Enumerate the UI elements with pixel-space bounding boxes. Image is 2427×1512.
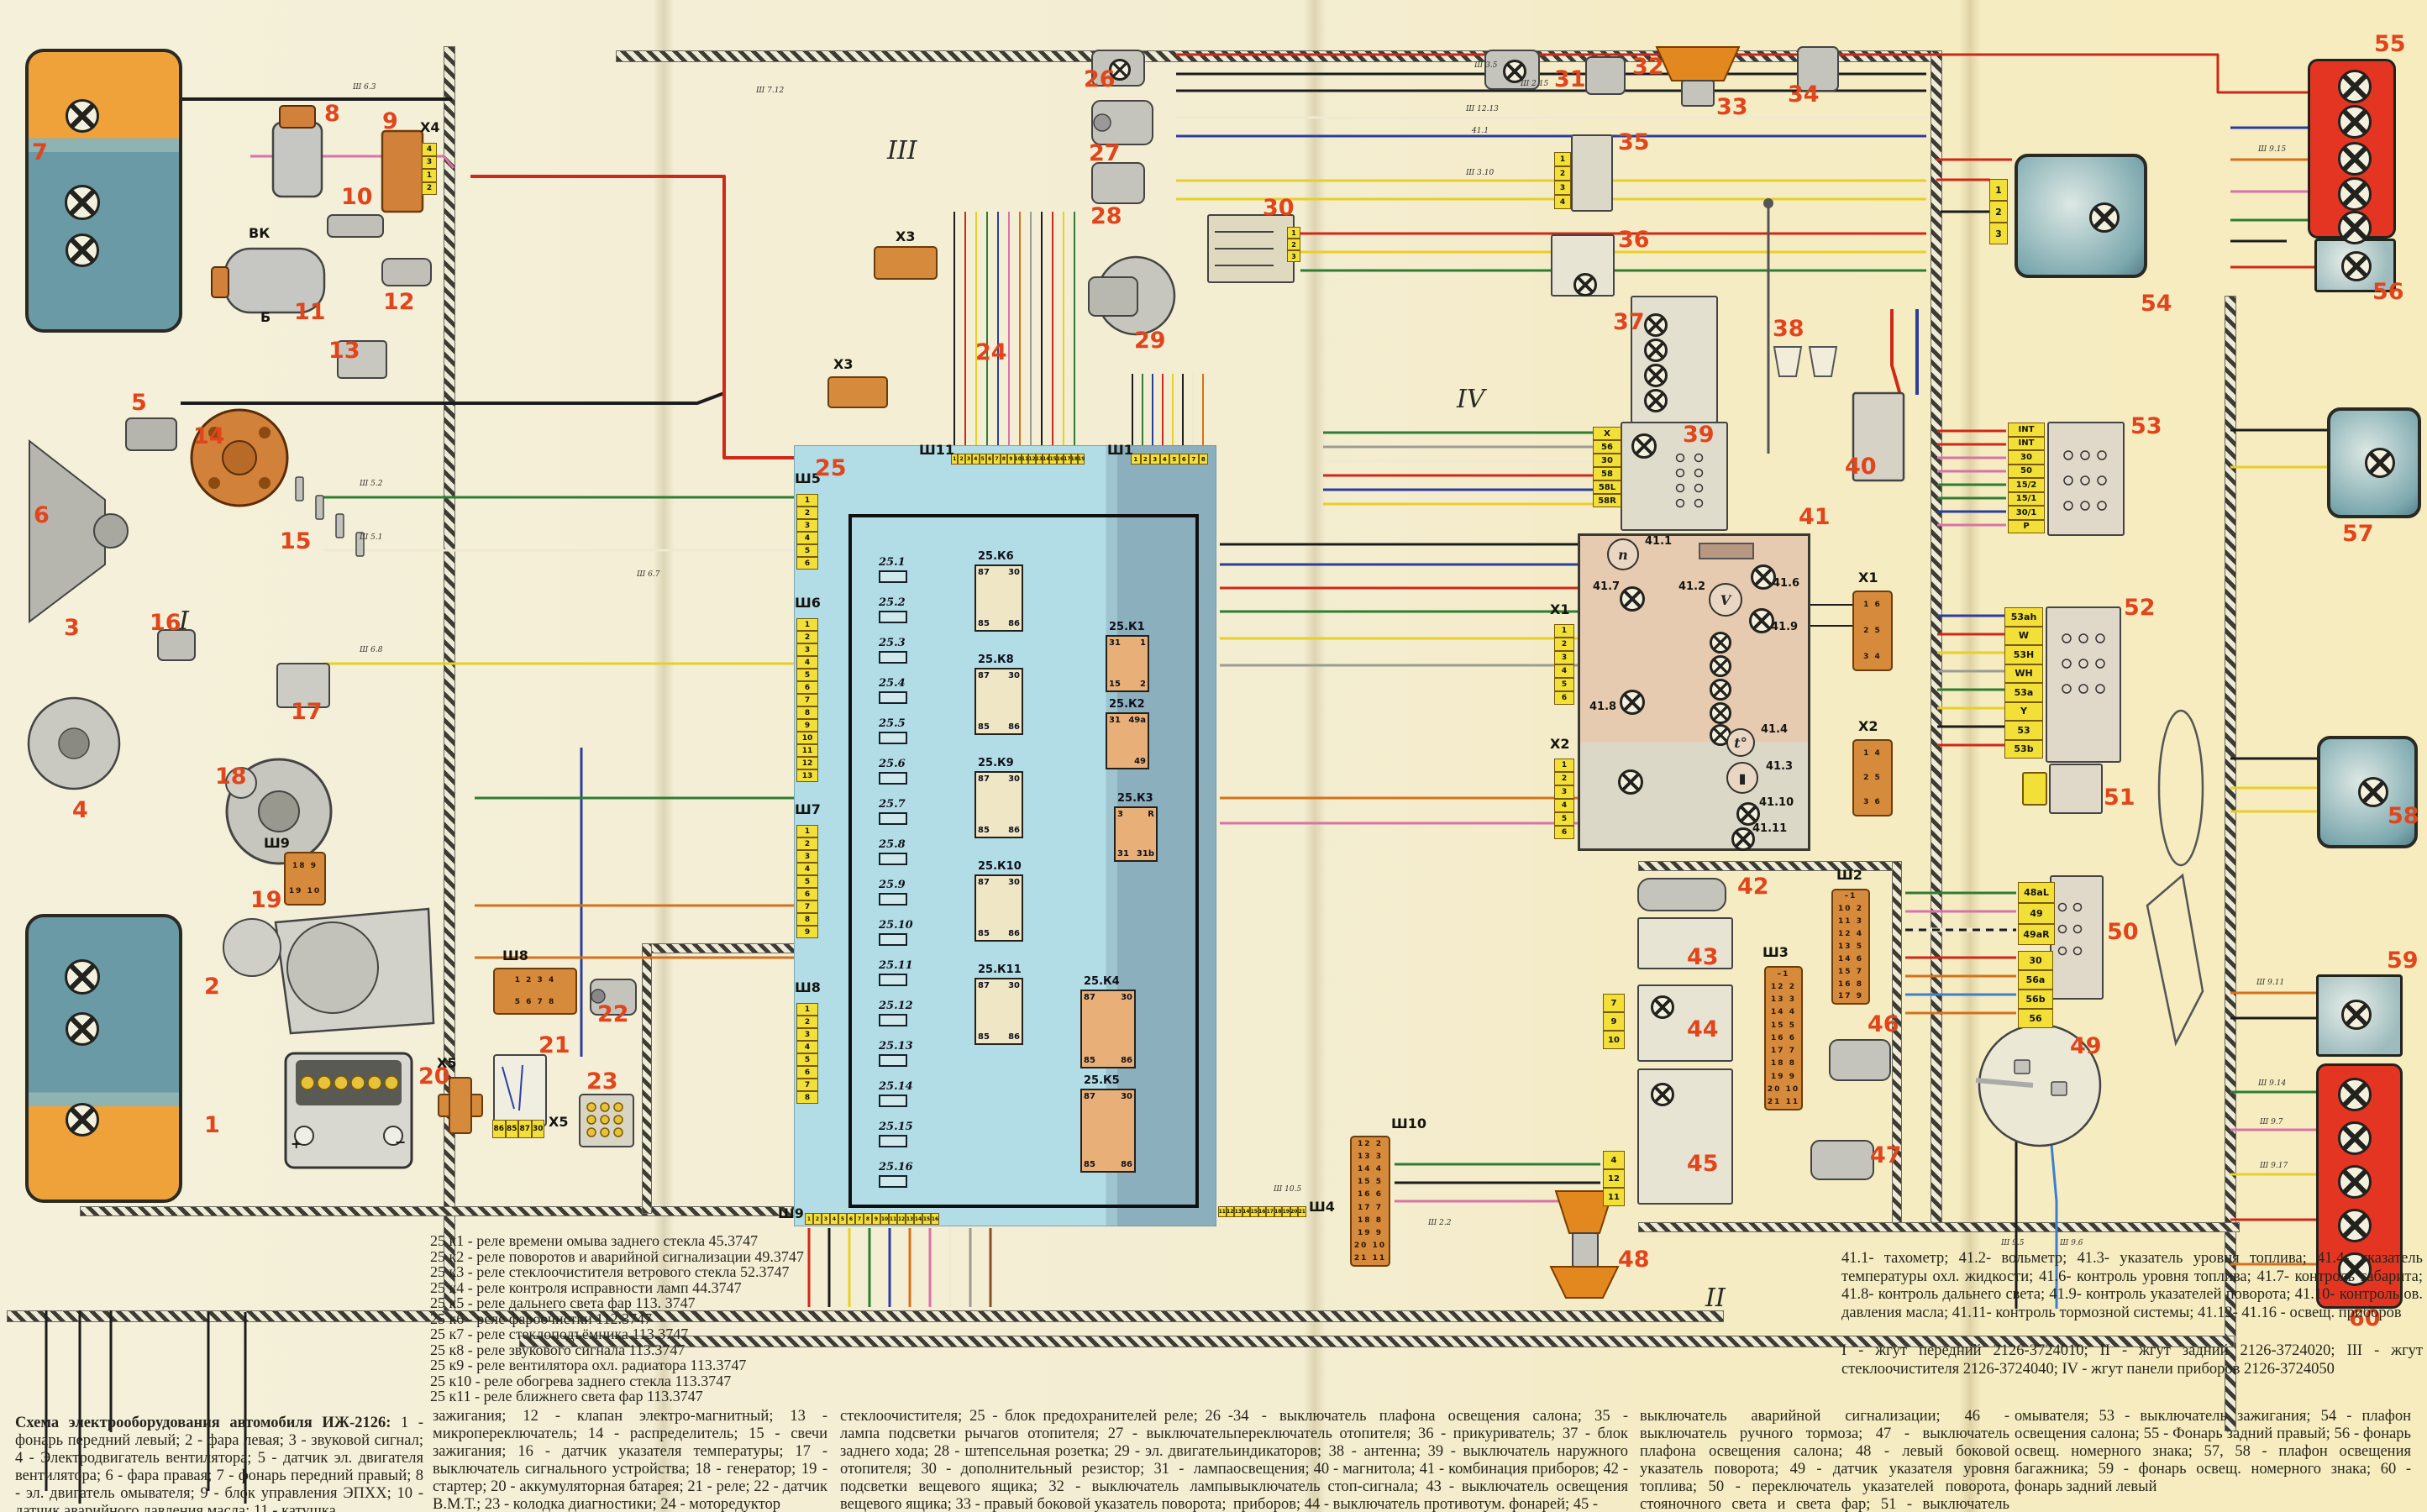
wire-label: Ш 2.15 <box>1521 80 1548 88</box>
relay-pin: 30 <box>1008 671 1020 680</box>
pin-53H: 53H <box>2004 645 2043 664</box>
pin-5: 5 <box>1554 678 1574 691</box>
component-number-29: 29 <box>1134 328 1166 354</box>
pin-12: 12 <box>1603 1169 1625 1188</box>
component-number-31: 31 <box>1554 66 1586 92</box>
pin-strip-unnamed: 41211 <box>1603 1151 1625 1206</box>
pin-4: 4 <box>1554 195 1571 209</box>
pin-14: 14 <box>1043 454 1049 465</box>
wiring-diagram-canvas: 25.125.225.325.425.525.625.725.825.925.1… <box>0 0 2427 1512</box>
connector-pin-row: 13 5 <box>1833 942 1868 951</box>
pin-56b: 56b <box>2018 990 2053 1009</box>
component-shape <box>1092 163 1144 203</box>
relay-legend-line: 25 к11 - реле ближнего света фар 113.374… <box>430 1389 804 1404</box>
pin-1: 1 <box>796 494 818 507</box>
component-shape <box>328 215 383 237</box>
pin-8: 8 <box>1199 454 1209 465</box>
pin-2: 2 <box>422 182 437 196</box>
relay-pin: R <box>1148 810 1154 819</box>
fuse-25.14 <box>879 1095 907 1107</box>
pin-58R: 58R <box>1593 494 1621 507</box>
cluster-item-label: 41.6 <box>1773 577 1799 590</box>
fuse-25.9 <box>879 893 907 906</box>
component-shape <box>1682 81 1714 106</box>
relay-pin: 49a <box>1128 716 1146 725</box>
pin-strip-Ш8: 12345678 <box>796 1003 818 1104</box>
pin-56: 56 <box>2018 1009 2053 1028</box>
pin-11: 11 <box>796 744 818 757</box>
lamp-symbol <box>66 234 99 267</box>
component-shape <box>334 1076 348 1089</box>
pin-11: 11 <box>1022 454 1028 465</box>
component-number-11: 11 <box>294 299 326 325</box>
pin-15/2: 15/2 <box>2008 478 2045 492</box>
pin-3: 3 <box>1150 454 1160 465</box>
component-number-19: 19 <box>250 887 282 913</box>
pin-10: 10 <box>1603 1031 1625 1049</box>
connector-pin-row: 18 8 <box>1352 1216 1389 1225</box>
relay-pin: 86 <box>1008 929 1020 938</box>
component-shape <box>296 477 303 501</box>
pin-2: 2 <box>796 1016 818 1028</box>
pin-6: 6 <box>1554 826 1574 839</box>
lamp-symbol <box>2365 448 2395 478</box>
component-number-38: 38 <box>1773 316 1804 342</box>
connector-label-Ш4: Ш4 <box>1309 1199 1335 1215</box>
lamp-symbol <box>1651 1083 1674 1106</box>
pin-2: 2 <box>813 1213 822 1225</box>
pin-53: 53 <box>2004 721 2043 740</box>
connector-pin-row: 1 4 <box>1854 749 1891 758</box>
pin-strip-unnamed: 1234 <box>1554 152 1571 209</box>
component-number-57: 57 <box>2342 521 2374 547</box>
pin-48aL: 48aL <box>2018 882 2055 903</box>
connector-label-Ш3: Ш3 <box>1762 944 1789 960</box>
fuse-label: 25.14 <box>879 1080 913 1093</box>
pin-8: 8 <box>796 913 818 926</box>
component-number-23: 23 <box>586 1068 618 1095</box>
connector-label-Ш1: Ш1 <box>1107 442 1133 458</box>
pin-3: 3 <box>822 1213 830 1225</box>
pin-14: 14 <box>1242 1206 1251 1217</box>
legend-column-3: стеклоочистителя; 25 - блок предохраните… <box>840 1408 1233 1512</box>
lamp-symbol <box>2338 1078 2372 1111</box>
pin-strip-unnamed: 86858730 <box>492 1120 544 1138</box>
pin-1: 1 <box>1554 152 1571 166</box>
component-number-32: 32 <box>1632 54 1664 80</box>
relay-25.К3: 25.К33R3131b <box>1114 806 1158 862</box>
component-shape <box>336 514 344 538</box>
component-shape <box>1586 57 1625 94</box>
connector-label-Ш10: Ш10 <box>1391 1116 1426 1131</box>
lamp-symbol <box>66 99 99 133</box>
connector-pin-row: 2 5 <box>1854 774 1891 782</box>
connector-pin-row: 12 2 <box>1352 1140 1389 1148</box>
fuse-25.1 <box>879 570 907 583</box>
pin-strip-unnamed: 123 <box>1989 179 2008 244</box>
pin-strip-unnamed: X56305858L58R <box>1593 427 1621 507</box>
relay-name: 25.К8 <box>978 654 1014 666</box>
relay-pin: 86 <box>1008 826 1020 835</box>
legend-column-6: омывателя; 53 - выключатель зажигания; 5… <box>2015 1408 2411 1496</box>
component-number-47: 47 <box>1870 1142 1902 1168</box>
pin-strip-unnamed: INTINT305015/215/130/1P <box>2008 423 2045 533</box>
pin-strip-unnamed: 7910 <box>1603 994 1625 1049</box>
lamp-symbol <box>2089 202 2120 233</box>
pin-WH: WH <box>2004 664 2043 684</box>
component-shape <box>273 123 322 197</box>
pin-53a: 53a <box>2004 683 2043 702</box>
relay-legend-line: 25 к4 - реле контроля исправности ламп 4… <box>430 1280 804 1296</box>
pin-P: P <box>2008 520 2045 534</box>
gauge-n: n <box>1607 538 1639 570</box>
cluster-item-label: 41.2 <box>1678 580 1705 593</box>
text-label: + <box>291 1136 302 1152</box>
component-shape <box>382 259 431 286</box>
pin-8: 8 <box>796 706 818 719</box>
connector-pin-row: 19 9 <box>1352 1229 1389 1237</box>
pin-13: 13 <box>906 1213 914 1225</box>
connector-label-X2: X2 <box>1550 736 1569 752</box>
component-number-34: 34 <box>1788 81 1820 108</box>
pin-strip-Ш4: 1112131415161718192021 <box>1218 1206 1306 1217</box>
component-number-5: 5 <box>131 390 147 416</box>
component-shape <box>126 418 176 450</box>
pin-1: 1 <box>1989 179 2008 201</box>
relay-pin: 15 <box>1109 680 1121 689</box>
component-shape <box>2051 1082 2067 1095</box>
lamp-symbol <box>2338 177 2372 211</box>
connector-label-Ш6: Ш6 <box>795 595 821 611</box>
pin-5: 5 <box>796 669 818 681</box>
pin-30: 30 <box>2018 951 2053 970</box>
pin-2: 2 <box>796 507 818 519</box>
pin-7: 7 <box>993 454 1000 465</box>
wire-label: Ш 7.12 <box>756 87 784 95</box>
connector-pin-row: 19 10 <box>286 887 324 895</box>
connector-pin-row: 5 6 7 8 <box>495 998 575 1006</box>
pin-INT: INT <box>2008 423 2045 437</box>
component-shape <box>223 441 256 475</box>
lamp-symbol <box>1710 655 1731 677</box>
lamp-symbol <box>2338 1121 2372 1155</box>
pin-6: 6 <box>847 1213 855 1225</box>
relay-pin: 87 <box>978 878 990 887</box>
pin-3: 3 <box>796 1028 818 1041</box>
component-number-48: 48 <box>1618 1247 1650 1273</box>
pin-56: 56 <box>1593 440 1621 454</box>
relay-legend-line: 25 к10 - реле обогрева заднего стекла 11… <box>430 1373 804 1389</box>
wire-label: Ш 9.14 <box>2258 1079 2286 1088</box>
component-number-9: 9 <box>382 108 398 134</box>
contact-dot <box>601 1116 609 1124</box>
pin-53ah: 53ah <box>2004 607 2043 627</box>
pin-13: 13 <box>796 769 818 782</box>
connector-Ш2: –110 211 312 413 514 615 716 817 9 <box>1831 889 1870 1005</box>
connector-pin-row: 16 8 <box>1833 980 1868 989</box>
relay-legend-line: 25 к3 - реле стеклоочистителя ветрового … <box>430 1264 804 1280</box>
harness-note: I - жгут передний 2126-3724010; II - жгу… <box>1841 1342 2423 1378</box>
fuse-25.10 <box>879 933 907 946</box>
component-shape <box>382 131 423 212</box>
fuse-label: 25.10 <box>879 919 913 932</box>
component-shape <box>1089 277 1137 316</box>
connector-pin-row: 11 3 <box>1833 917 1868 926</box>
component-shape <box>1830 1040 1890 1080</box>
pin-9: 9 <box>872 1213 880 1225</box>
component-shape <box>301 1076 314 1089</box>
contact-dot <box>601 1128 609 1137</box>
relay-pin: 87 <box>978 774 990 784</box>
lamp-symbol <box>1620 586 1645 612</box>
component-number-45: 45 <box>1687 1151 1719 1177</box>
relay-pin: 86 <box>1121 1160 1132 1169</box>
connector-pin-row: 14 4 <box>1352 1165 1389 1173</box>
relay-name: 25.К1 <box>1109 621 1145 633</box>
pin-6: 6 <box>796 681 818 694</box>
pin-4: 4 <box>830 1213 838 1225</box>
lamp-symbol <box>66 1103 99 1137</box>
component-number-7: 7 <box>32 139 48 165</box>
component-shape <box>2015 1060 2030 1074</box>
fuse-25.6 <box>879 772 907 785</box>
pin-10: 10 <box>1015 454 1022 465</box>
connector-label-X3: X3 <box>833 356 853 372</box>
fuse-25.7 <box>879 812 907 825</box>
relay-name: 25.К11 <box>978 963 1022 976</box>
relay-pin: 85 <box>978 929 990 938</box>
pin-12: 12 <box>897 1213 906 1225</box>
relay-pin: 85 <box>978 826 990 835</box>
component-number-30: 30 <box>1263 195 1295 221</box>
wire-label: Ш 6.3 <box>353 83 376 92</box>
pin-strip-unnamed: 3056a56b56 <box>2018 951 2053 1028</box>
relay-name: 25.К9 <box>978 757 1014 769</box>
component-shape <box>1094 114 1111 131</box>
pin-9: 9 <box>1603 1012 1625 1031</box>
gauge-V: V <box>1709 583 1742 617</box>
wire-label: Ш 9.7 <box>2260 1118 2283 1126</box>
relay-name: 25.К3 <box>1117 792 1153 805</box>
relay-pin: 1 <box>1140 638 1146 648</box>
lamp-symbol <box>1710 702 1731 724</box>
component-number-15: 15 <box>280 528 312 554</box>
lamp-symbol <box>1620 690 1645 715</box>
pin-4: 4 <box>796 1041 818 1053</box>
pin-13: 13 <box>1234 1206 1242 1217</box>
pin-15: 15 <box>922 1213 931 1225</box>
fuse-label: 25.9 <box>879 879 906 891</box>
pin-7: 7 <box>796 1079 818 1091</box>
fuse-label: 25.5 <box>879 717 906 730</box>
connector-label-X1: X1 <box>1550 601 1569 617</box>
pin-13: 13 <box>1036 454 1043 465</box>
pin-strip-unnamed: 123 <box>1287 227 1300 262</box>
relay-name: 25.К10 <box>978 860 1022 873</box>
relay-pin: 85 <box>978 1032 990 1042</box>
relay-pin: 87 <box>978 671 990 680</box>
pin-11: 11 <box>1603 1188 1625 1206</box>
connector-X1: 1 62 53 4 <box>1852 591 1893 671</box>
component-shape <box>1657 47 1739 81</box>
lamp-symbol <box>2338 70 2372 103</box>
legend-title: Схема электрооборудования автомобиля ИЖ-… <box>15 1415 391 1431</box>
connector-X2: 1 42 53 6 <box>1852 739 1893 816</box>
component-shape <box>1573 1233 1598 1267</box>
pin-3: 3 <box>422 156 437 170</box>
pin-strip-Ш7: 123456789 <box>796 825 818 938</box>
pin-4: 4 <box>1160 454 1170 465</box>
pin-5: 5 <box>796 1053 818 1066</box>
pin-7: 7 <box>796 694 818 706</box>
wire-label: Ш 2.2 <box>1428 1219 1451 1227</box>
pin-50: 50 <box>2008 465 2045 479</box>
pin-49: 49 <box>2018 903 2055 924</box>
connector-pin-row: 15 7 <box>1833 968 1868 976</box>
component-number-18: 18 <box>215 764 247 790</box>
relay-name: 25.К2 <box>1109 698 1145 711</box>
pin-1: 1 <box>796 1003 818 1016</box>
pin-20: 20 <box>1290 1206 1299 1217</box>
component-number-16: 16 <box>150 610 181 636</box>
front-lamp-7-6 <box>25 49 182 333</box>
component-number-27: 27 <box>1089 140 1121 166</box>
pin-4: 4 <box>1554 664 1574 678</box>
relay-25.К6: 25.К687308586 <box>974 564 1023 632</box>
relay-25.К5: 25.К587308586 <box>1080 1089 1136 1173</box>
pin-5: 5 <box>1554 812 1574 826</box>
relay-legend-line: 25 к7 - реле стеклоподъёмника 113.3747 <box>430 1326 804 1342</box>
pin-strip-Ш9: 12345678910111213141516 <box>805 1213 939 1225</box>
relay-pin: 85 <box>978 722 990 732</box>
relay-pin: 31 <box>1109 716 1121 725</box>
relay-name: 25.К6 <box>978 550 1014 563</box>
relay-pin: 87 <box>1084 1092 1095 1101</box>
pin-9: 9 <box>1007 454 1014 465</box>
lamp-symbol <box>2338 1209 2372 1242</box>
connector-pin-row: 15 5 <box>1352 1178 1389 1186</box>
pin-8: 8 <box>1001 454 1007 465</box>
component-number-46: 46 <box>1868 1011 1899 1037</box>
connector-pin-row: –1 <box>1766 970 1801 979</box>
relay-pin: 31 <box>1117 849 1129 858</box>
lamp-symbol <box>1644 389 1668 412</box>
pin-3: 3 <box>1989 223 2008 244</box>
component-number-4: 4 <box>72 797 88 823</box>
connector-label-Ш7: Ш7 <box>795 801 821 817</box>
component-number-24: 24 <box>975 339 1007 365</box>
contact-dot <box>614 1116 623 1124</box>
component-shape <box>1811 1141 1873 1179</box>
wire-label: Ш 10.5 <box>1274 1185 1301 1194</box>
pin-87: 87 <box>518 1120 532 1138</box>
lamp-symbol <box>1573 273 1597 297</box>
text-label: ВК <box>249 225 270 241</box>
component-shape <box>2048 423 2124 535</box>
component-shape <box>223 919 281 976</box>
wire-label: Ш 9.15 <box>2258 145 2286 154</box>
pin-16: 16 <box>931 1213 939 1225</box>
connector-Ш10: 12 213 314 415 516 617 718 819 920 1021 … <box>1350 1136 1390 1267</box>
component-number-50: 50 <box>2107 919 2139 945</box>
component-shape <box>385 1076 398 1089</box>
connector-pin-row: 18 8 <box>1766 1059 1801 1068</box>
fuse-25.3 <box>879 651 907 664</box>
pin-3: 3 <box>965 454 972 465</box>
pin-3: 3 <box>796 643 818 656</box>
relay-pin: 30 <box>1121 993 1132 1002</box>
pin-6: 6 <box>796 557 818 570</box>
lamp-symbol <box>1731 827 1755 851</box>
gauge-▮: ▮ <box>1726 762 1758 794</box>
connector-label-X2: X2 <box>1858 718 1878 734</box>
component-shape <box>2051 876 2103 999</box>
pin-6: 6 <box>1179 454 1190 465</box>
pin-58: 58 <box>1593 467 1621 480</box>
connector-pin-row: 21 11 <box>1766 1098 1801 1106</box>
component-number-35: 35 <box>1618 129 1650 155</box>
pin-30: 30 <box>1593 454 1621 467</box>
pin-18: 18 <box>1071 454 1078 465</box>
pin-3: 3 <box>1287 250 1300 262</box>
legend-column-5: выключатель аварийной сигнализации; 46 -… <box>1640 1408 2009 1512</box>
connector-pin-row: 14 6 <box>1833 955 1868 963</box>
pin-strip-X4: 4312 <box>422 143 437 195</box>
component-number-51: 51 <box>2104 785 2135 811</box>
wire-bk <box>181 393 724 403</box>
fuse-25.12 <box>879 1014 907 1026</box>
relay-pin: 30 <box>1008 878 1020 887</box>
relay-25.К1: 25.К1311152 <box>1106 635 1149 692</box>
fuse-label: 25.8 <box>879 838 906 851</box>
pin-2: 2 <box>796 631 818 643</box>
cluster-item-label: 41.10 <box>1759 796 1794 809</box>
harness-roman-IV: IV <box>1457 385 1485 414</box>
component-number-12: 12 <box>383 289 415 315</box>
pin-5: 5 <box>838 1213 847 1225</box>
relay-pin: 30 <box>1008 568 1020 577</box>
pin-11: 11 <box>1218 1206 1227 1217</box>
pin-49aR: 49aR <box>2018 924 2055 945</box>
pin-X: X <box>1593 427 1621 440</box>
component-number-40: 40 <box>1845 454 1877 480</box>
connector-pin-row: 16 6 <box>1766 1034 1801 1042</box>
relay-name: 25.К4 <box>1084 975 1120 988</box>
component-number-42: 42 <box>1737 874 1769 900</box>
pin-10: 10 <box>796 732 818 744</box>
lamp-symbol <box>2341 1000 2372 1030</box>
connector-label-X3: X3 <box>896 228 915 244</box>
relay-legend-list: 25 к1 - реле времени омыва заднего стекл… <box>430 1233 804 1404</box>
pin-15: 15 <box>1049 454 1056 465</box>
pin-58L: 58L <box>1593 480 1621 494</box>
pin-56a: 56a <box>2018 970 2053 990</box>
relay-25.К8: 25.К887308586 <box>974 668 1023 735</box>
wire-label: Ш 5.1 <box>360 533 382 542</box>
component-shape <box>2147 875 2203 1043</box>
cluster-item-label: 41.4 <box>1761 723 1788 736</box>
pin-3: 3 <box>796 519 818 532</box>
legend-column-2: зажигания; 12 - клапан электро-магнитный… <box>433 1408 827 1512</box>
pin-16: 16 <box>1057 454 1064 465</box>
pin-2: 2 <box>1989 201 2008 223</box>
component-number-14: 14 <box>193 423 225 449</box>
wire-label: Ш 6.8 <box>360 646 382 654</box>
pin-strip-Ш6: 12345678910111213 <box>796 618 818 782</box>
pin-2: 2 <box>1554 772 1574 785</box>
fuse-label: 25.2 <box>879 596 906 609</box>
relay-pin: 30 <box>1121 1092 1132 1101</box>
